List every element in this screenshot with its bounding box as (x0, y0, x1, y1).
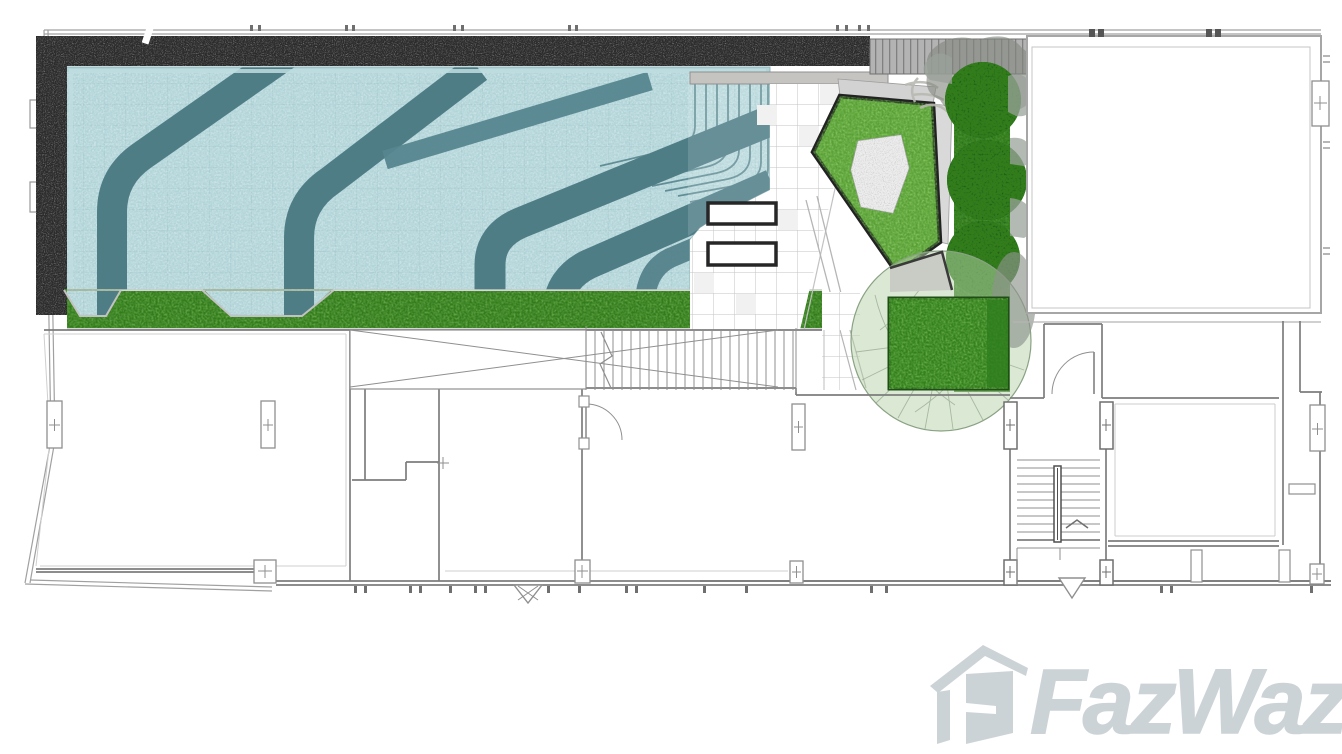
svg-text:FazWaz: FazWaz (1030, 651, 1342, 753)
